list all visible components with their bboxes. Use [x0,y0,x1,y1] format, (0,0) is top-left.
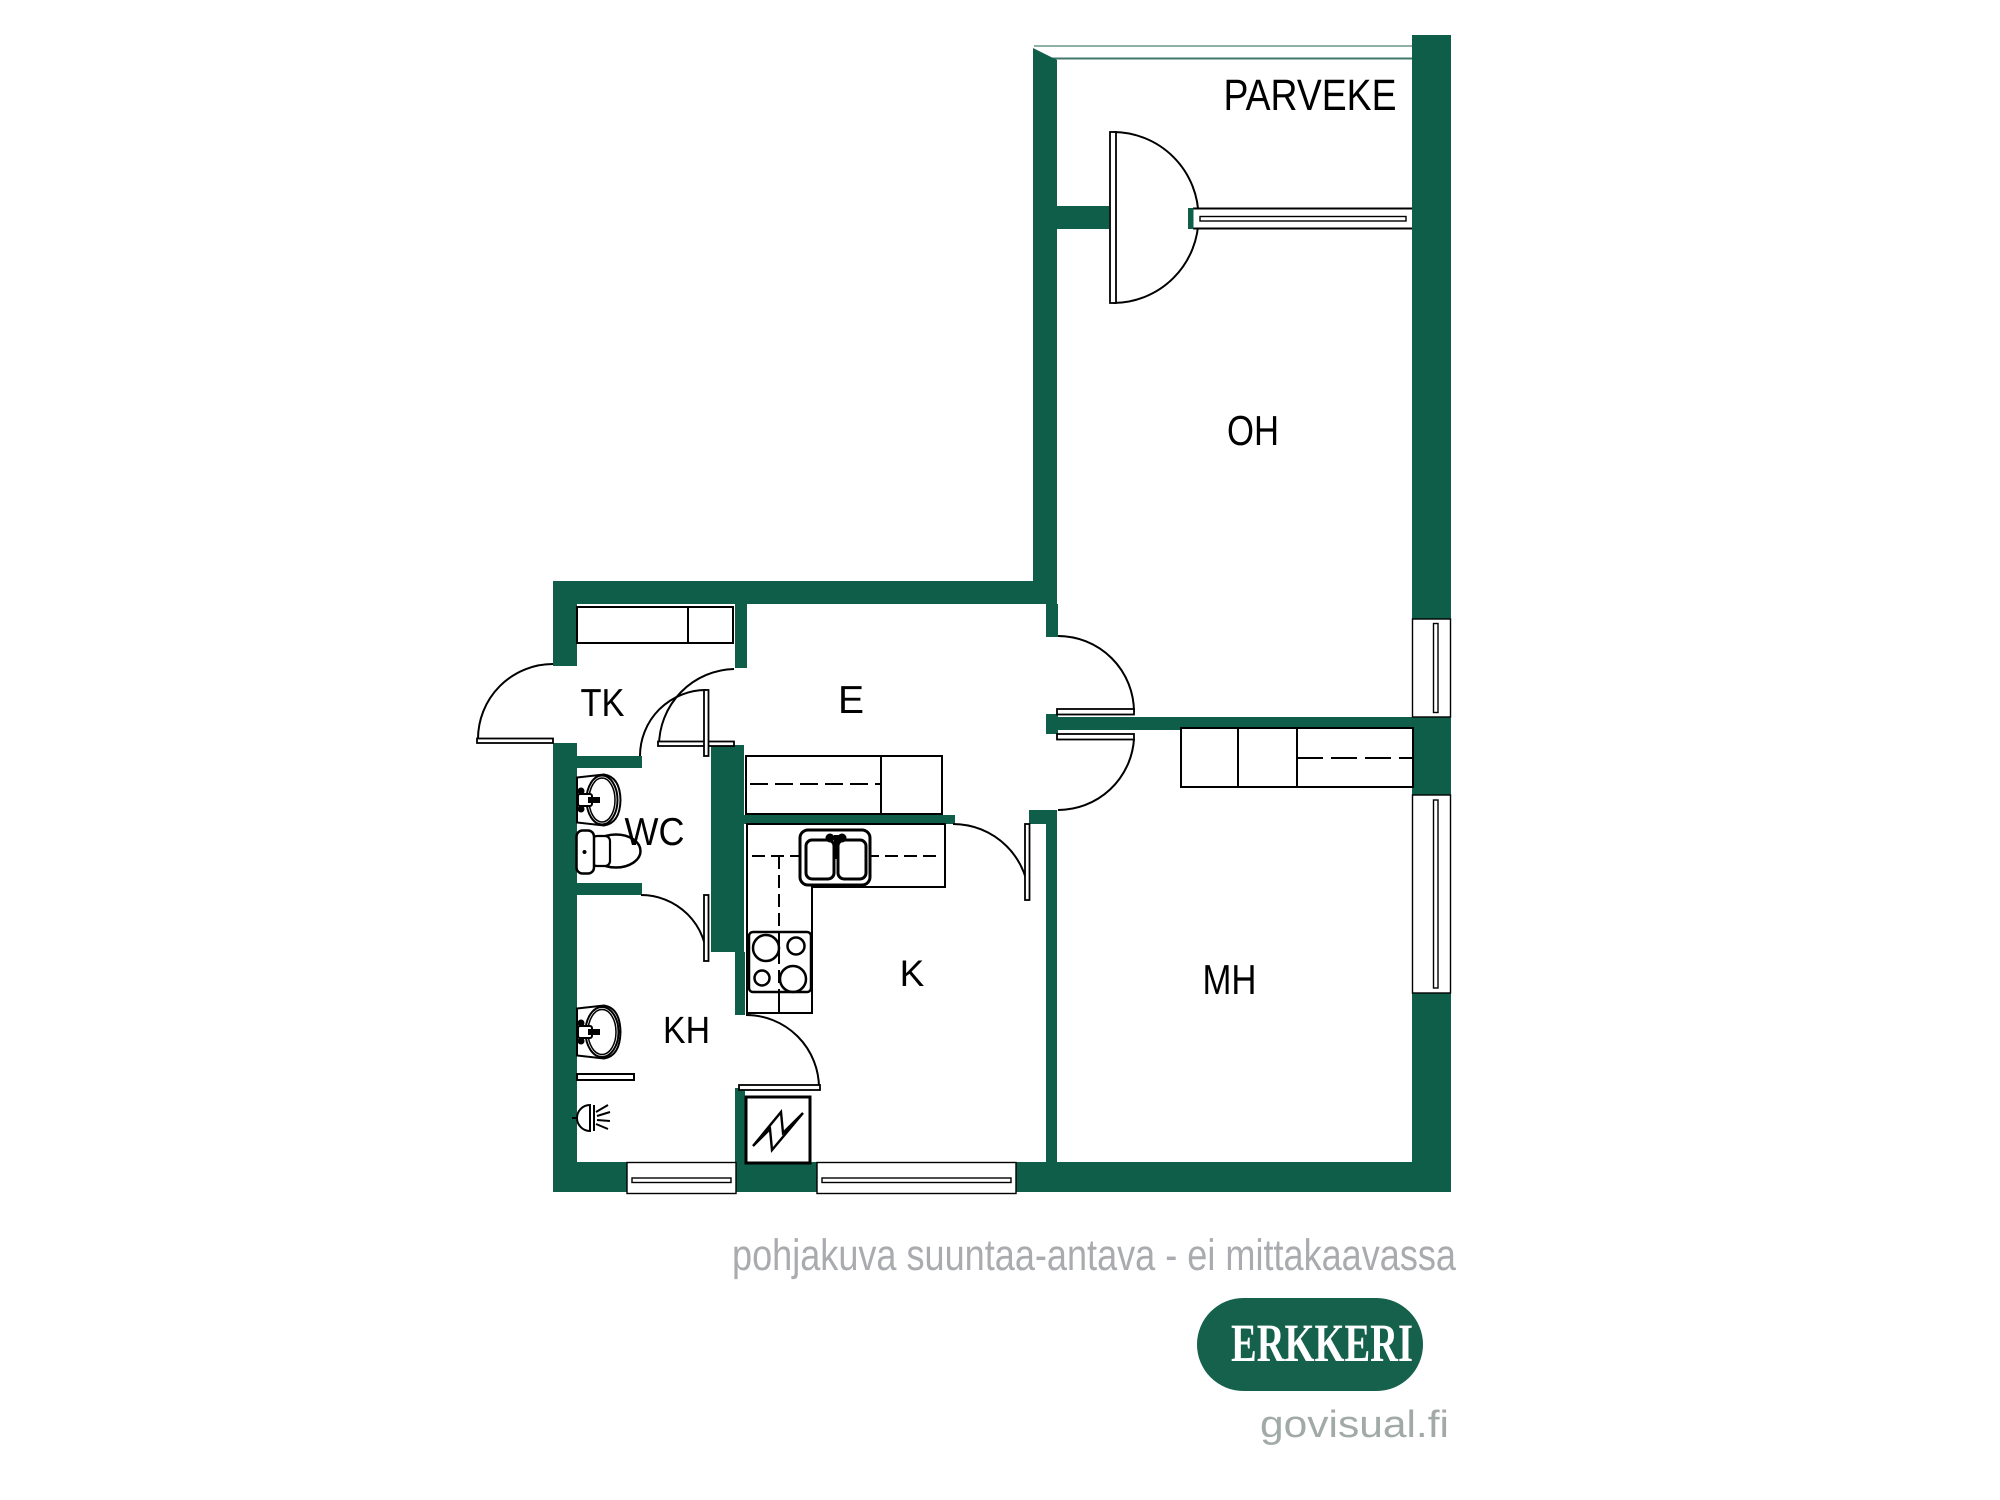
svg-text:PARVEKE: PARVEKE [1224,71,1397,120]
svg-text:E: E [838,679,864,722]
svg-text:govisual.fi: govisual.fi [1260,1404,1449,1446]
svg-text:OH: OH [1227,407,1279,454]
svg-text:K: K [900,953,925,994]
svg-text:KH: KH [663,1010,710,1052]
svg-text:pohjakuva suuntaa-antava - ei: pohjakuva suuntaa-antava - ei mittakaava… [732,1231,1456,1280]
svg-text:TK: TK [581,682,625,725]
svg-text:WC: WC [625,811,685,854]
svg-text:MH: MH [1203,956,1257,1003]
svg-text:ERKKERI: ERKKERI [1231,1313,1413,1373]
